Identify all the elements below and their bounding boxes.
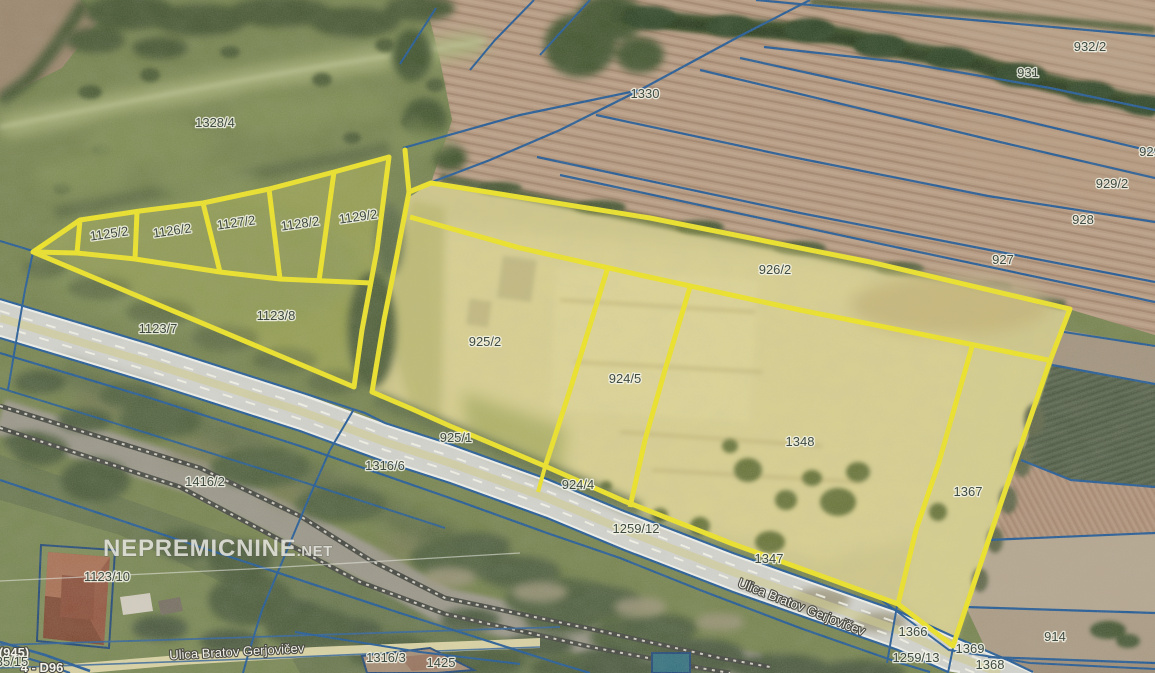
svg-text:1369: 1369 — [956, 641, 985, 656]
svg-text:1367: 1367 — [954, 484, 983, 499]
svg-text:1259/13: 1259/13 — [893, 650, 940, 665]
svg-text:925/1: 925/1 — [440, 430, 473, 445]
svg-text:1259/12: 1259/12 — [613, 521, 660, 536]
svg-text:914: 914 — [1044, 629, 1066, 644]
svg-text:1425: 1425 — [427, 655, 456, 670]
svg-text:927: 927 — [992, 252, 1014, 267]
svg-text:928: 928 — [1072, 212, 1094, 227]
svg-text:932/2: 932/2 — [1074, 39, 1107, 54]
svg-text:35/15: 35/15 — [0, 654, 28, 669]
svg-text:931: 931 — [1017, 65, 1039, 80]
svg-text:924/4: 924/4 — [562, 477, 595, 492]
svg-text:1123/8: 1123/8 — [257, 308, 296, 323]
svg-text:1328/4: 1328/4 — [195, 115, 235, 130]
svg-text:1366: 1366 — [899, 624, 928, 639]
svg-text:1316/6: 1316/6 — [365, 458, 405, 473]
svg-text:1416/2: 1416/2 — [185, 474, 225, 489]
svg-text:1123/7: 1123/7 — [139, 321, 178, 336]
svg-text:925/2: 925/2 — [469, 334, 502, 349]
svg-text:1348: 1348 — [786, 434, 815, 449]
svg-text:1316/3: 1316/3 — [366, 650, 406, 665]
svg-text:1368: 1368 — [976, 657, 1005, 672]
svg-text:929: 929 — [1139, 144, 1155, 159]
svg-text:924/5: 924/5 — [609, 371, 642, 386]
svg-text:929/2: 929/2 — [1096, 176, 1129, 191]
svg-text:1330: 1330 — [631, 86, 660, 101]
svg-text:926/2: 926/2 — [759, 262, 792, 277]
svg-text:1347: 1347 — [755, 551, 784, 566]
svg-text:1123/10: 1123/10 — [84, 569, 130, 584]
